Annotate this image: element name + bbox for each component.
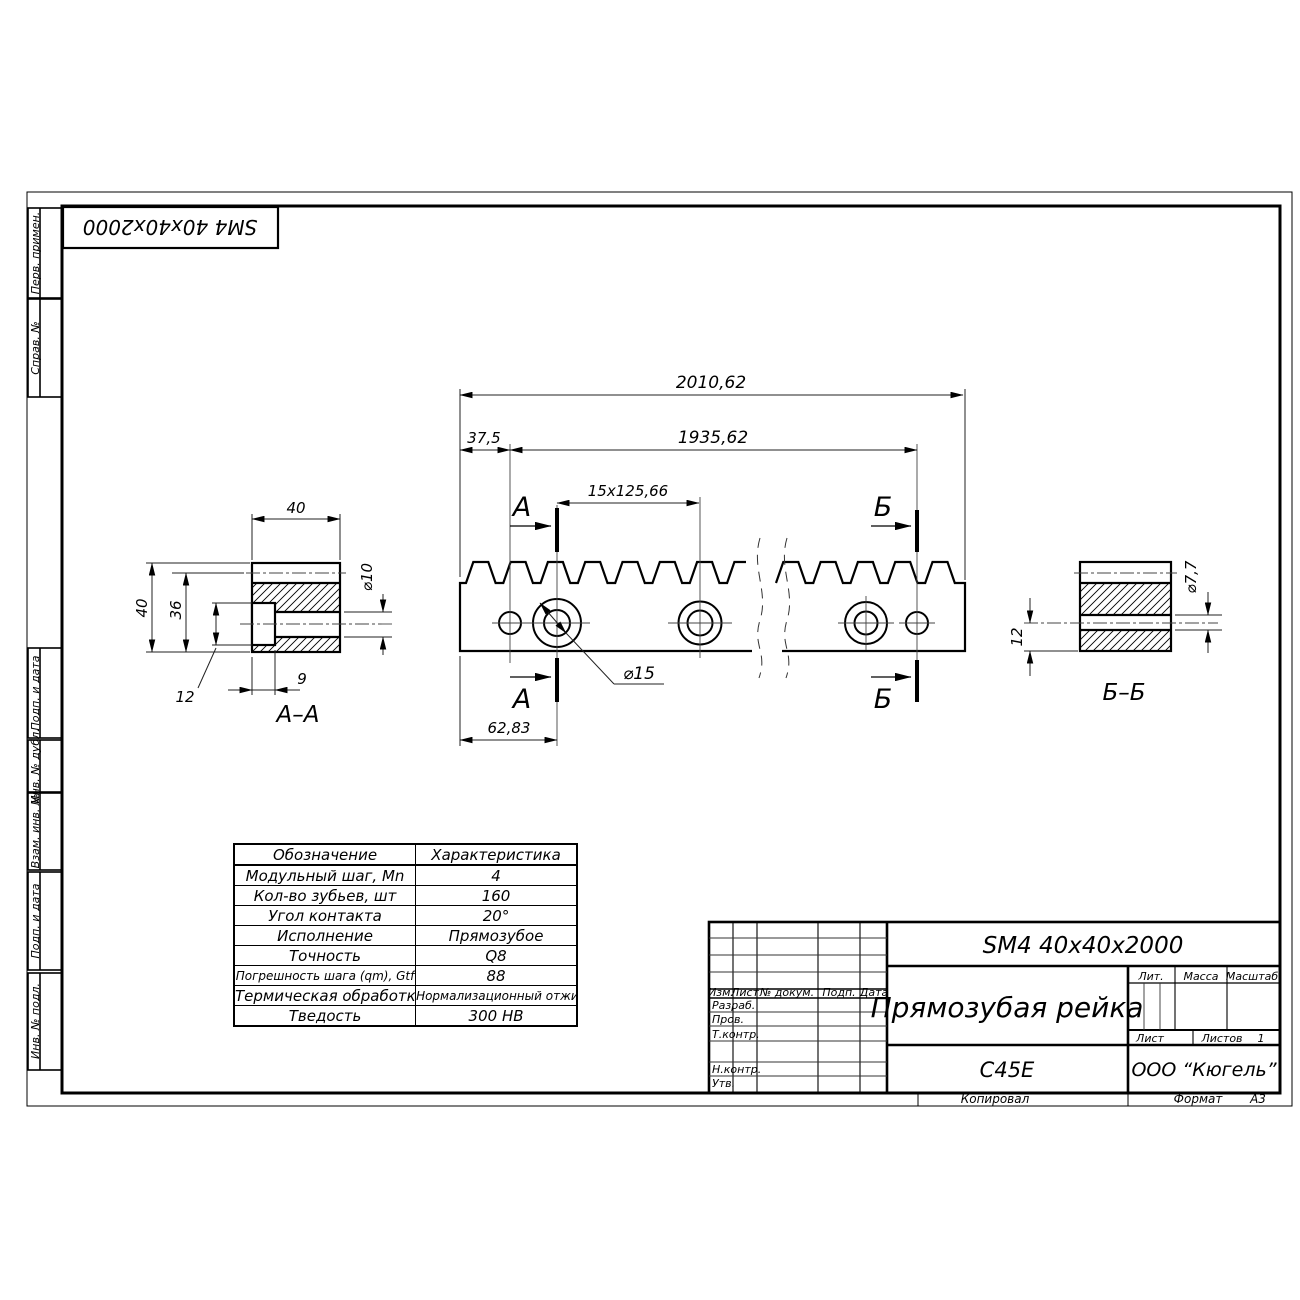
footer-copied-by: Копировал — [961, 1092, 1030, 1106]
margin-field-label: Подп. и дата — [29, 655, 42, 730]
param-label: Термическая обработка — [234, 986, 416, 1006]
param-label: Погрешность шага (qm), Gtf — [234, 966, 416, 986]
tb-mass-label: Масса — [1183, 970, 1218, 983]
tb-material: C45E — [980, 1058, 1035, 1082]
drawing-canvas: Перв. примен. Справ. № Подп. и дата Инв.… — [0, 0, 1300, 1300]
param-value: 160 — [416, 886, 577, 906]
margin-field-label: Инв. № подл. — [29, 983, 42, 1059]
param-row: Тведость 300 HB — [234, 1006, 577, 1027]
cut-label-a-top: А — [511, 492, 531, 523]
dim-aa-dia10: ⌀10 — [358, 563, 376, 591]
tb-row-utv: Утв. — [712, 1077, 735, 1090]
param-header-designation: Обозначение — [234, 844, 416, 865]
param-row: Модульный шаг, Mn 4 — [234, 865, 577, 886]
param-label: Точность — [234, 946, 416, 966]
cut-label-b-bottom: Б — [874, 684, 893, 715]
section-cut-strokes — [557, 508, 917, 702]
margin-field-label: Взам. инв. № — [29, 794, 42, 869]
dim-aa-height: 40 — [133, 598, 151, 617]
param-header-characteristic: Характеристика — [416, 844, 577, 865]
parameters-table: Обозначение Характеристика Модульный шаг… — [233, 843, 578, 1027]
param-row: Погрешность шага (qm), Gtf 88 — [234, 966, 577, 986]
param-label: Угол контакта — [234, 906, 416, 926]
tb-row-nkontr: Н.контр. — [712, 1063, 761, 1076]
rack-main-view: А А Б Б 2010,62 37,5 1935,62 15x125,66 6… — [460, 373, 965, 746]
tb-lit-label: Лит. — [1137, 970, 1163, 983]
section-bb-title: Б–Б — [1102, 680, 1145, 706]
tb-sheets-label: Листов — [1200, 1032, 1242, 1045]
dim-aa-width: 40 — [286, 499, 305, 517]
break-lines — [757, 538, 789, 678]
param-value: Прямозубое — [416, 926, 577, 946]
param-label: Кол-во зубьев, шт — [234, 886, 416, 906]
param-value: 300 HB — [416, 1006, 577, 1027]
footer-format-value: А3 — [1249, 1092, 1266, 1106]
dim-total-length: 2010,62 — [676, 373, 746, 393]
param-value: 88 — [416, 966, 577, 986]
param-value: 4 — [416, 865, 577, 886]
dim-aa-9: 9 — [297, 670, 307, 688]
param-row: Точность Q8 — [234, 946, 577, 966]
rack-body-left — [460, 562, 752, 651]
rack-body-right — [776, 562, 965, 651]
dim-end-offset: 37,5 — [467, 429, 500, 447]
dim-aa-12: 12 — [175, 688, 194, 706]
tb-designation: SM4 40x40x2000 — [983, 933, 1184, 959]
section-bb-view: 12 ⌀7,7 Б–Б — [1008, 560, 1222, 706]
dim-bb-dia: ⌀7,7 — [1182, 560, 1200, 593]
tb-scale-label: Масштаб — [1226, 970, 1278, 983]
top-stamp-text: SM4 40x40x2000 — [83, 215, 258, 239]
margin-field-label: Перв. примен. — [29, 212, 42, 295]
dim-pitch-span: 15x125,66 — [588, 482, 668, 500]
param-value: Q8 — [416, 946, 577, 966]
title-block: Изм. Лист № докум. Подп. Дата Разраб. Пр… — [708, 922, 1280, 1106]
param-label: Исполнение — [234, 926, 416, 946]
cut-label-b-top: Б — [874, 492, 893, 523]
drawing-sheet: Перв. примен. Справ. № Подп. и дата Инв.… — [0, 0, 1300, 1300]
section-aa-view: 40 40 36 ⌀10 9 12 А–А — [133, 499, 392, 728]
section-cut-arrows — [510, 526, 911, 677]
tb-row-tkontr: Т.контр. — [712, 1028, 760, 1041]
dim-aa-36: 36 — [167, 600, 185, 619]
margin-stamp-labels: Перв. примен. Справ. № Подп. и дата Инв.… — [29, 212, 42, 1059]
tb-col-podp: Подп. — [822, 986, 855, 999]
tb-sheet-label: Лист — [1135, 1032, 1164, 1045]
tb-sheets-value: 1 — [1258, 1032, 1265, 1045]
dim-hole-diameter: ⌀15 — [623, 664, 655, 684]
param-row: Кол-во зубьев, шт 160 — [234, 886, 577, 906]
section-aa-title: А–А — [275, 702, 320, 728]
tb-col-izm: Изм. — [708, 986, 734, 999]
param-value: 20° — [416, 906, 577, 926]
tb-company: ООО “Кюгель” — [1131, 1059, 1276, 1081]
tb-col-ndokum: № докум. — [759, 986, 814, 999]
tb-row-prov: Пров. — [712, 1013, 744, 1026]
param-row: Угол контакта 20° — [234, 906, 577, 926]
margin-field-label: Справ. № — [29, 321, 42, 375]
margin-field-label: Инв. № дубл. — [29, 728, 42, 803]
margin-field-label: Подп. и дата — [29, 883, 42, 958]
param-value: Нормализационный отжиг — [416, 986, 577, 1006]
tb-row-razrab: Разраб. — [712, 999, 755, 1012]
tb-col-list: Лист — [730, 986, 759, 999]
param-row: Исполнение Прямозубое — [234, 926, 577, 946]
cut-label-a-bottom: А — [511, 684, 531, 715]
param-row: Термическая обработка Нормализационный о… — [234, 986, 577, 1006]
param-header-row: Обозначение Характеристика — [234, 844, 577, 865]
param-label: Модульный шаг, Mn — [234, 865, 416, 886]
param-label: Тведость — [234, 1006, 416, 1027]
tb-part-name: Прямозубая рейка — [871, 991, 1144, 1024]
dim-first-hole-offset: 62,83 — [488, 719, 531, 737]
footer-format-label: Формат — [1174, 1092, 1224, 1106]
dim-holes-span: 1935,62 — [678, 428, 748, 448]
dim-bb-12: 12 — [1008, 627, 1026, 646]
